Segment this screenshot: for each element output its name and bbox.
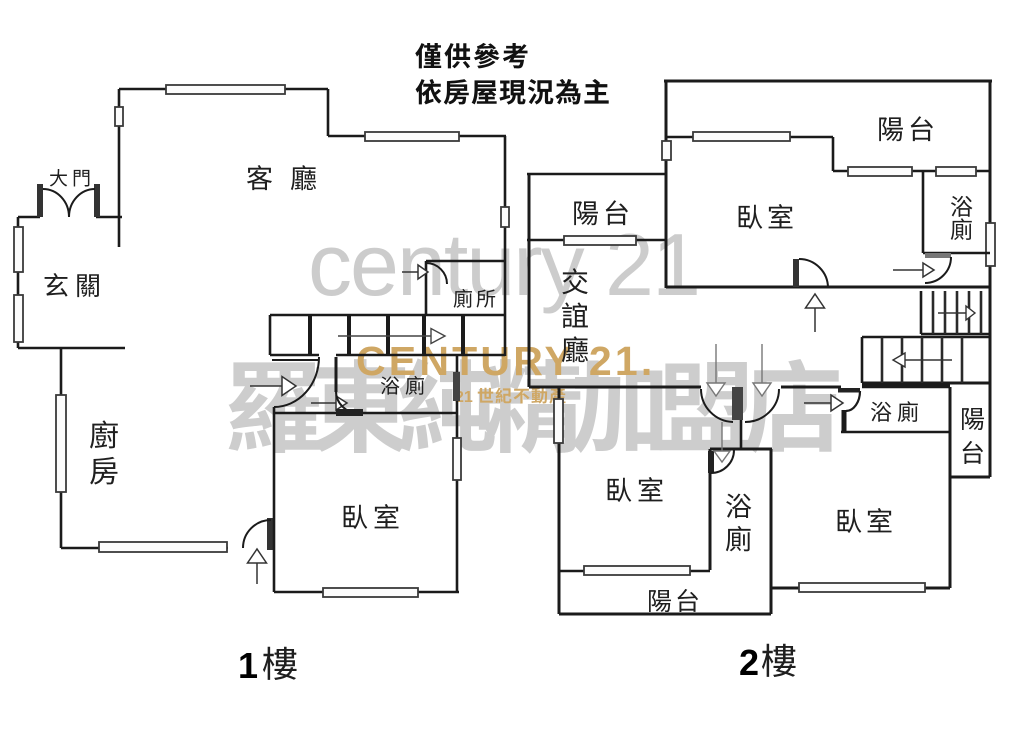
- svg-text:1: 1: [238, 645, 258, 686]
- svg-text:2: 2: [739, 642, 759, 683]
- svg-text:century 21: century 21: [308, 215, 699, 314]
